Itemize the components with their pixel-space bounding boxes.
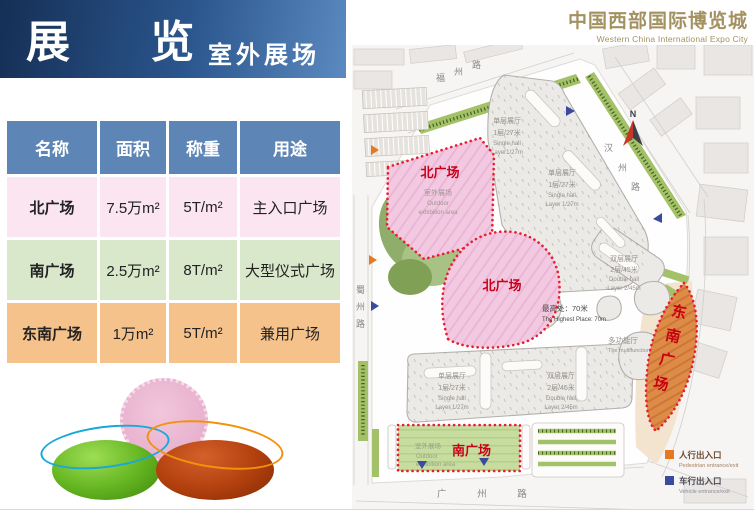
- table-row: 南广场 2.5万m² 8T/m² 大型仪式广场: [7, 240, 340, 300]
- plaza-table: 名称 面积 称重 用途 北广场 7.5万m² 5T/m² 主入口广场 南广场 2…: [4, 118, 343, 366]
- road-west-char: 州: [356, 302, 365, 312]
- col-header-load: 称重: [169, 121, 237, 174]
- hall-label-en1: Double hall: [609, 277, 639, 283]
- hall-label-en1: Single hall: [548, 193, 576, 199]
- multifunction-hall-en: The multifunction…: [608, 348, 655, 354]
- cell-load: 8T/m²: [169, 240, 237, 300]
- vehicle-legend-en: Vehicle entrance/exit: [679, 489, 730, 495]
- hall-label-spec: 2层/45米: [547, 383, 575, 392]
- highest-point-en: The Highest Place: 70m: [542, 317, 606, 323]
- cell-load: 5T/m²: [169, 177, 237, 237]
- pedestrian-legend-cn: 人行出入口: [679, 450, 722, 460]
- cell-area: 1万m²: [100, 303, 166, 363]
- hall-label-en2: Layer1/27m: [491, 150, 523, 156]
- road-north-char: 路: [472, 59, 481, 70]
- outdoor-note-en2: exhibition area: [418, 210, 458, 216]
- north-plaza-lower-label: 北广场: [482, 278, 521, 293]
- cell-area: 2.5万m²: [100, 240, 166, 300]
- vehicle-legend-cn: 车行出入口: [679, 476, 722, 486]
- table-row: 北广场 7.5万m² 5T/m² 主入口广场: [7, 177, 340, 237]
- col-header-area: 面积: [100, 121, 166, 174]
- road-east-char: 路: [631, 181, 640, 192]
- cell-usage: 大型仪式广场: [240, 240, 340, 300]
- highest-point-cn: 最高处：70米: [542, 303, 588, 313]
- hall-label-en2: Layer 1/27m: [545, 202, 578, 208]
- road-east-char: 汉: [604, 143, 613, 153]
- brand-title: 中国西部国际博览城: [548, 6, 748, 33]
- south-note-en1: Outdoor: [416, 454, 438, 460]
- hall-label-cn: 双层展厅: [610, 255, 638, 263]
- compass-north-letter: N: [630, 109, 637, 119]
- cell-name: 南广场: [7, 240, 97, 300]
- site-plan-svg: 北广场 室外展场 Outdoor exhibition area 北广场 室外展…: [352, 45, 754, 509]
- hall-label-spec: 1层/27米: [493, 128, 521, 137]
- hall-label-cn: 双层展厅: [547, 372, 575, 380]
- page-subtitle: 室外展场: [208, 35, 320, 70]
- south-plaza-label: 南广场: [452, 443, 491, 458]
- north-plaza-upper-label: 北广场: [420, 165, 459, 180]
- hall-label-cn: 单层展厅: [493, 116, 521, 125]
- road-north-char: 福: [436, 72, 445, 83]
- outdoor-note-cn: 室外展场: [424, 188, 452, 197]
- brand-subtitle: Western China International Expo City: [548, 34, 748, 44]
- road-east-char: 州: [618, 163, 627, 173]
- hall-label-cn: 单层展厅: [438, 371, 466, 380]
- road-west-char: 蜀: [356, 285, 365, 295]
- cell-name: 北广场: [7, 177, 97, 237]
- road-west-char: 路: [356, 318, 365, 329]
- hall-label-cn: 单层展厅: [548, 168, 576, 177]
- plaza-3d-artwork: [30, 372, 280, 504]
- south-plaza: 室外展场 Outdoor exhibition area 南广场: [398, 425, 520, 471]
- outdoor-note-en1: Outdoor: [427, 201, 449, 207]
- col-header-name: 名称: [7, 121, 97, 174]
- pedestrian-legend-en: Pedestrian entrance/exit: [679, 463, 739, 469]
- cell-area: 7.5万m²: [100, 177, 166, 237]
- site-plan-map: 北广场 室外展场 Outdoor exhibition area 北广场 室外展…: [352, 45, 754, 509]
- col-header-usage: 用途: [240, 121, 340, 174]
- brand-logo: 中国西部国际博览城 Western China International Ex…: [548, 6, 748, 44]
- cell-load: 5T/m²: [169, 303, 237, 363]
- south-note-cn: 室外展场: [415, 441, 442, 450]
- parking-southeast: [532, 423, 624, 477]
- slide: { "banner": {"title": "展 览", "subtitle":…: [0, 0, 754, 509]
- cell-usage: 主入口广场: [240, 177, 340, 237]
- pedestrian-legend-swatch: [665, 450, 674, 459]
- hall-label-spec: 1层/27米: [548, 180, 576, 189]
- vehicle-legend-swatch: [665, 476, 674, 485]
- table-header-row: 名称 面积 称重 用途: [7, 121, 340, 174]
- table-row: 东南广场 1万m² 5T/m² 兼用广场: [7, 303, 340, 363]
- road-north-char: 州: [454, 67, 463, 77]
- hall-label-en1: Single hall: [438, 396, 466, 402]
- cell-name: 东南广场: [7, 303, 97, 363]
- hall-label-spec: 2层/45米: [610, 265, 638, 274]
- hall-label-spec: 1层/27米: [438, 383, 466, 392]
- page-title: 展 览: [26, 6, 228, 70]
- hall-label-en2: Layer 2/45m: [607, 286, 640, 292]
- title-banner: 展 览 室外展场: [0, 0, 346, 78]
- hall-label-en2: Layer 1/27m: [435, 405, 468, 411]
- hall-label-en1: Single hall: [493, 141, 521, 147]
- hall-label-en2: Layer 2/45m: [544, 405, 577, 411]
- cell-usage: 兼用广场: [240, 303, 340, 363]
- multifunction-hall-cn: 多功能厅: [608, 335, 638, 345]
- road-south-label: 广 州 路: [437, 488, 541, 500]
- hall-label-en1: Double hall: [546, 396, 576, 402]
